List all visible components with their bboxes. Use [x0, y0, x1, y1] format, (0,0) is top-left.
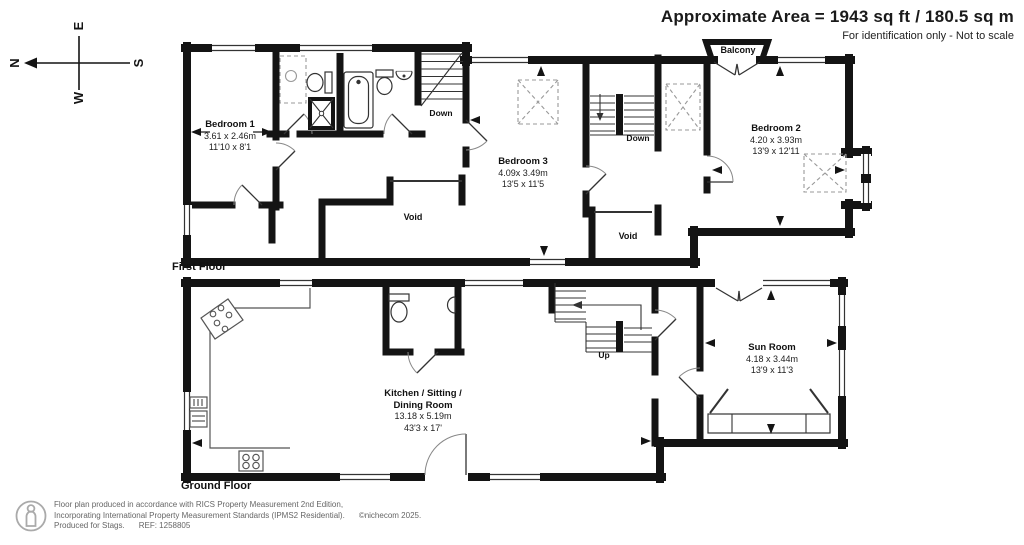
kitchen-label: Kitchen / Sitting / Dining Room 13.18 x …: [384, 388, 462, 434]
bedroom1-metric: 3.61 x 2.46m: [204, 131, 256, 143]
bay-window-mullion: [861, 174, 871, 183]
stair-newel: [616, 94, 623, 135]
sink-1: [396, 72, 412, 80]
balcony-label: Balcony: [720, 45, 755, 55]
compass-north: N: [7, 58, 22, 67]
toilet-2: [376, 70, 393, 95]
shower-head: [286, 71, 297, 82]
toilet-3-cistern: [389, 294, 409, 301]
compass-south: S: [131, 58, 146, 67]
ground-floor-label: Ground Floor: [181, 480, 251, 492]
up-label: Up: [598, 350, 609, 360]
page-subtitle: For identification only - Not to scale: [661, 30, 1014, 42]
compass-east: E: [71, 21, 86, 30]
ground-floor-outer-walls: [185, 281, 844, 479]
down-label-right: Down: [626, 133, 649, 143]
shower-tray: [310, 99, 333, 128]
kitchen-hob: [239, 451, 263, 471]
toilet-3-bowl: [391, 302, 407, 322]
bedroom1-name: Bedroom 1: [204, 119, 256, 131]
wardrobe-box: [804, 154, 846, 192]
compass-rose: [24, 36, 130, 90]
bedroom3-imperial: 13'5 x 11'5: [498, 179, 548, 191]
stairs-down-left: [421, 53, 463, 106]
skylight-box-2: [666, 84, 700, 130]
footer-ref: REF: 1258805: [139, 521, 191, 530]
sunroom-label: Sun Room 4.18 x 3.44m 13'9 x 11'3: [746, 342, 798, 377]
bedroom3-label: Bedroom 3 4.09x 3.49m 13'5 x 11'5: [498, 156, 548, 191]
footer: Floor plan produced in accordance with R…: [54, 500, 421, 532]
bedroom1-label: Bedroom 1 3.61 x 2.46m 11'10 x 8'1: [204, 119, 256, 154]
bedroom2-name: Bedroom 2: [750, 123, 802, 135]
french-doors: [716, 288, 762, 301]
sink-2: [448, 297, 456, 313]
stair-newel-gf: [616, 321, 623, 352]
bedroom3-metric: 4.09x 3.49m: [498, 168, 548, 180]
bedroom3-name: Bedroom 3: [498, 156, 548, 168]
bedroom2-metric: 4.20 x 3.93m: [750, 135, 802, 147]
compass-north-arrow: [24, 58, 37, 69]
stairs-down-right: [590, 94, 654, 135]
down-label-left: Down: [429, 108, 452, 118]
footer-line1: Floor plan produced in accordance with R…: [54, 500, 421, 511]
floorplan-drawing: E N S W: [0, 0, 1024, 545]
kitchen-appliances: [190, 397, 207, 427]
bedroom2-label: Bedroom 2 4.20 x 3.93m 13'9 x 12'11: [750, 123, 802, 158]
wc-fixtures: [389, 294, 455, 322]
sunroom-name: Sun Room: [746, 342, 798, 354]
french-door-opening: [715, 278, 763, 288]
first-floor-label: First Floor: [172, 261, 226, 273]
footer-ipms: Incorporating International Property Mea…: [54, 511, 345, 520]
bathroom-fixtures: [280, 56, 412, 128]
stair-direction-arrow-gf: [572, 301, 582, 309]
bathtub: [344, 72, 373, 128]
compass-west: W: [71, 91, 86, 104]
footer-line3: Produced for Stags.REF: 1258805: [54, 521, 421, 532]
kitchen-fittings: [190, 288, 310, 471]
kitchen-name-line1: Kitchen / Sitting /: [384, 388, 462, 400]
page-title: Approximate Area = 1943 sq ft / 180.5 sq…: [661, 7, 1014, 27]
ground-floor-plan: [182, 278, 847, 482]
bedroom1-imperial: 11'10 x 8'1: [204, 142, 256, 154]
nichecom-logo-icon: [17, 502, 46, 531]
header: Approximate Area = 1943 sq ft / 180.5 sq…: [661, 7, 1014, 42]
sunroom-imperial: 13'9 x 11'3: [746, 365, 798, 377]
kitchen-name-line2: Dining Room: [384, 400, 462, 412]
entry-door-opening: [425, 472, 468, 482]
void-label-right: Void: [619, 231, 638, 241]
first-floor-inner-walls: [187, 48, 707, 260]
toilet-1: [307, 72, 332, 93]
footer-produced-for: Produced for Stags.: [54, 521, 125, 530]
skylight-box-1: [518, 80, 558, 124]
kitchen-imperial: 43'3 x 17': [384, 423, 462, 435]
kitchen-sink-unit: [201, 299, 243, 339]
sunroom-metric: 4.18 x 3.44m: [746, 354, 798, 366]
footer-copyright: ©nichecom 2025.: [359, 511, 421, 520]
footer-line2: Incorporating International Property Mea…: [54, 511, 421, 522]
void-label-left: Void: [404, 212, 423, 222]
floorplan-page: E N S W: [0, 0, 1024, 545]
stairs-up: [555, 283, 652, 352]
bedroom2-imperial: 13'9 x 12'11: [750, 146, 802, 158]
kitchen-metric: 13.18 x 5.19m: [384, 411, 462, 423]
shower-enclosure: [280, 56, 306, 103]
